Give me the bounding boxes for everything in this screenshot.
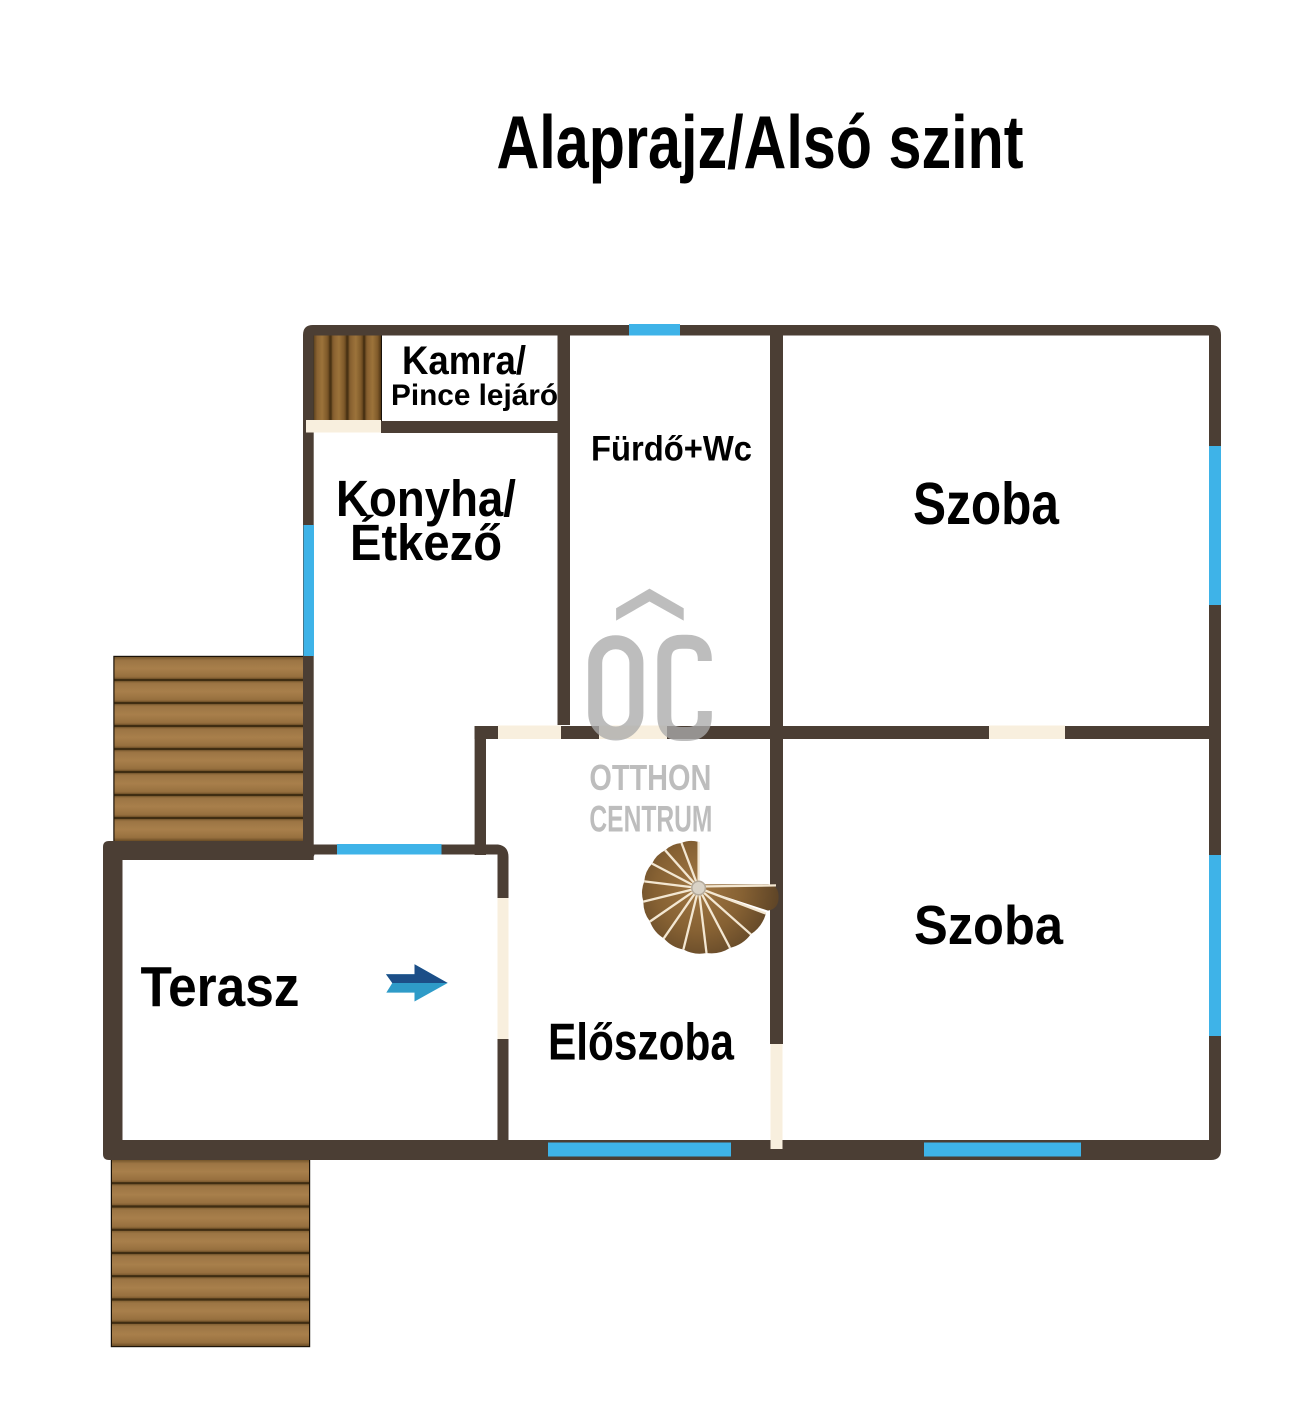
svg-text:CENTRUM: CENTRUM [589, 799, 712, 840]
svg-text:Pince lejáró: Pince lejáró [391, 379, 558, 412]
svg-text:Szoba: Szoba [913, 470, 1060, 537]
svg-text:Előszoba: Előszoba [548, 1013, 734, 1071]
svg-text:Étkező: Étkező [350, 514, 502, 571]
svg-text:Terasz: Terasz [141, 955, 300, 1018]
svg-text:Szoba: Szoba [914, 894, 1063, 956]
svg-text:OTTHON: OTTHON [589, 757, 711, 798]
svg-text:Alaprajz/Alsó szint: Alaprajz/Alsó szint [497, 100, 1024, 184]
svg-text:Fürdő+Wc: Fürdő+Wc [591, 430, 752, 469]
svg-text:Kamra/: Kamra/ [402, 339, 526, 383]
